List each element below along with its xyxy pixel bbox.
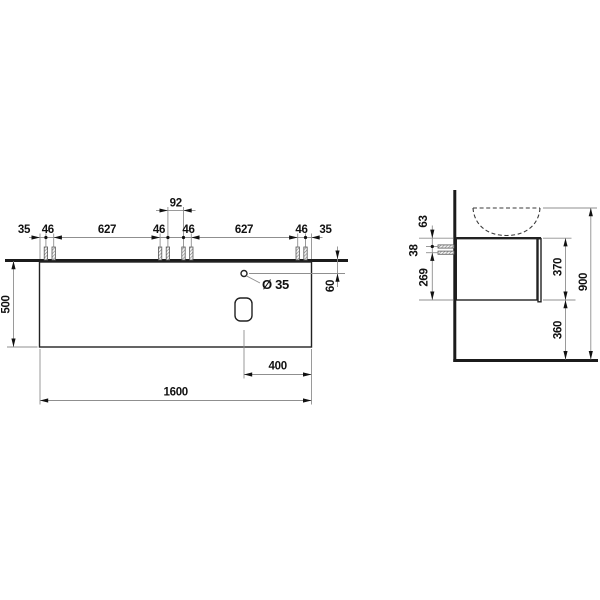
front-top-extension-lines: [40, 207, 312, 259]
floor-clearance-dimension: 360: [553, 300, 566, 360]
dim-label-46-1: 46: [42, 224, 54, 236]
siphon-cutout: [235, 298, 252, 321]
front-top-dimension-chain: 35 46 627 46 46 627 46 35: [18, 224, 333, 239]
faucet-hole-leader-line: [246, 276, 260, 283]
cabinet-outline-side: [456, 238, 537, 300]
side-left-dimension-chain: 63 38 269: [408, 215, 434, 300]
drawer-front-panel: [538, 239, 541, 302]
dowel-pins-side: [438, 245, 454, 254]
faucet-hole: [241, 271, 247, 277]
dim-label-627-left: 627: [98, 224, 116, 236]
dim-label-900: 900: [578, 273, 590, 291]
total-width-dimension: 1600: [40, 349, 312, 405]
front-center-gap-dimension: 92: [156, 198, 196, 211]
dim-label-1600: 1600: [164, 387, 188, 399]
dim-label-46-3: 46: [182, 224, 194, 236]
dim-label-269: 269: [418, 268, 430, 286]
dimension-drawing-canvas: 35 46 627 46 46 627 46 35 92 Ø 35: [0, 0, 600, 600]
total-height-dimension: 900: [578, 208, 591, 360]
dim-label-35-right: 35: [319, 224, 332, 236]
front-view: 35 46 627 46 46 627 46 35 92 Ø 35: [1, 198, 349, 405]
dim-label-38: 38: [408, 244, 420, 257]
cabinet-height-dimension: 370: [553, 238, 566, 300]
cutout-offset-dimension: 400: [244, 330, 312, 405]
dim-label-63: 63: [418, 215, 430, 227]
dowel-pins-front: [44, 247, 307, 260]
technical-drawing-page: 35 46 627 46 46 627 46 35 92 Ø 35: [0, 0, 600, 600]
dim-label-60: 60: [325, 280, 337, 292]
washbasin-dashed-outline: [473, 208, 540, 236]
front-height-dimension: 500: [1, 261, 38, 347]
dim-label-46-4: 46: [295, 224, 307, 236]
dim-label-370: 370: [553, 258, 565, 276]
dim-label-627-right: 627: [235, 224, 253, 236]
side-view: 63 38 269 370 360 900: [408, 190, 598, 362]
dim-label-46-2: 46: [153, 224, 165, 236]
hole-diameter-label: Ø 35: [262, 277, 289, 292]
dim-label-35-left: 35: [18, 224, 31, 236]
dim-label-360: 360: [553, 321, 565, 339]
cabinet-outline-front: [40, 262, 312, 347]
dim-label-500: 500: [1, 295, 13, 313]
dim-label-92: 92: [170, 198, 182, 210]
dim-label-400: 400: [269, 361, 287, 373]
